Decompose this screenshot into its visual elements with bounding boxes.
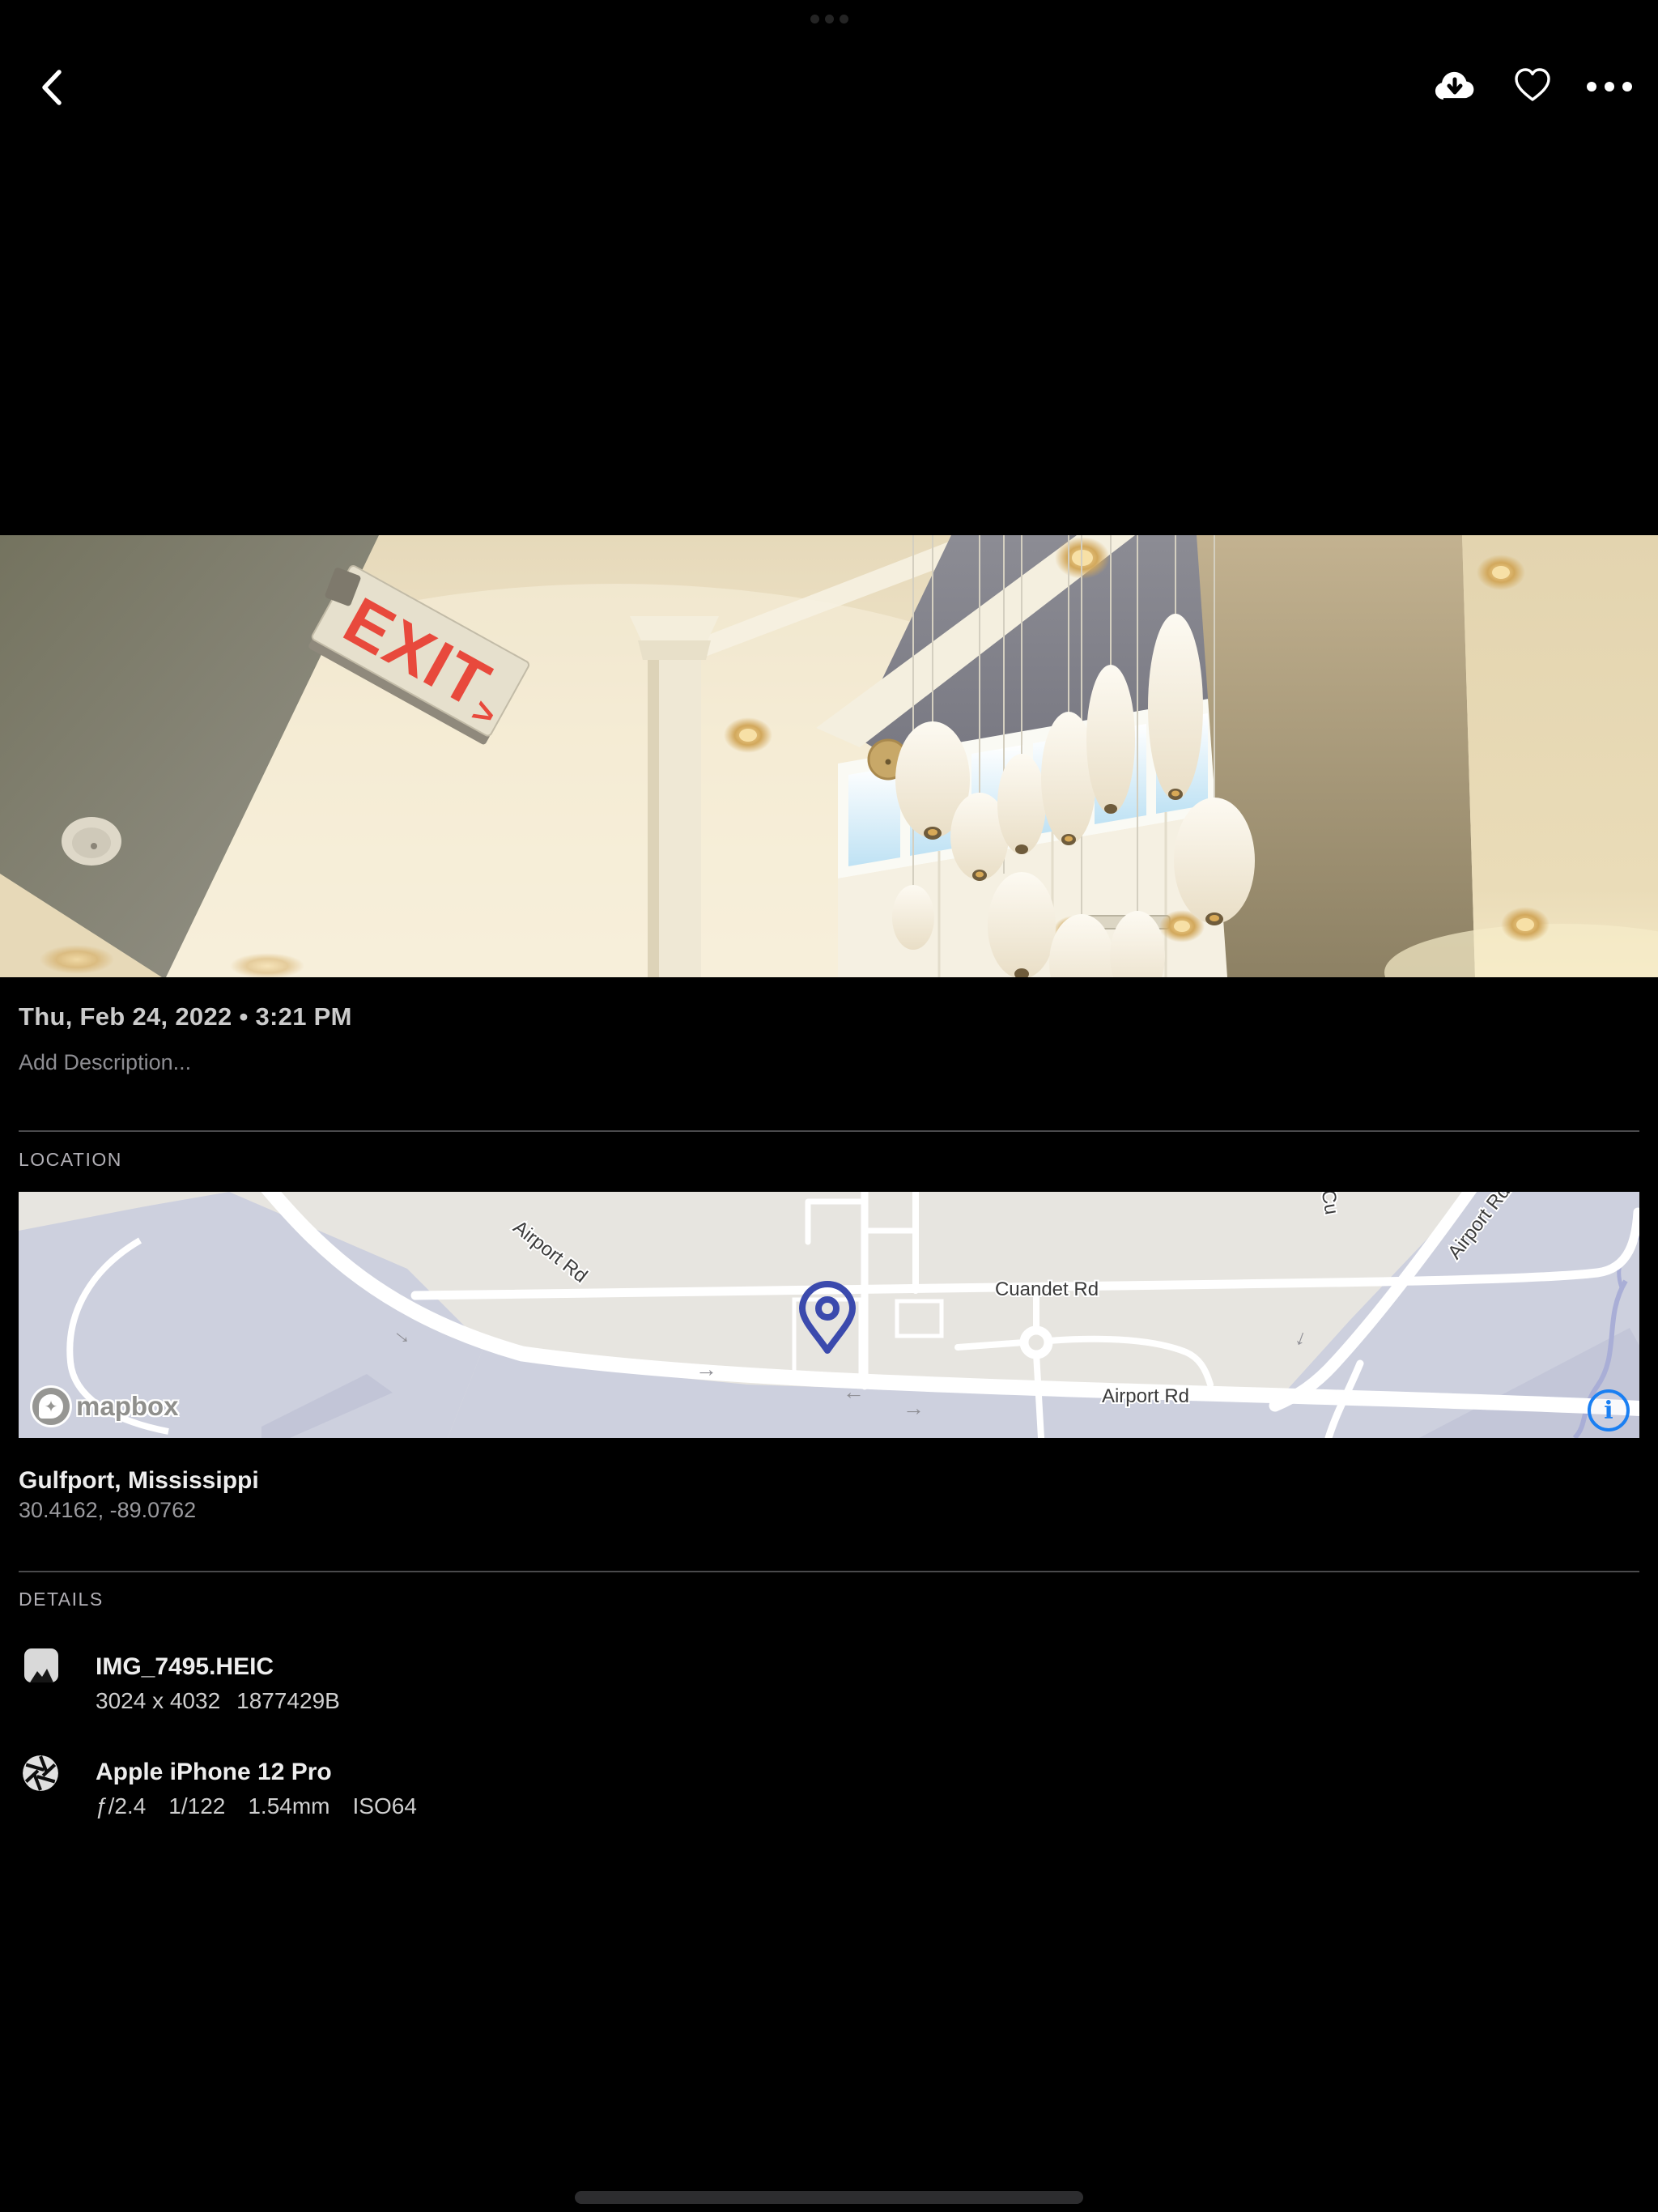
- file-size: 1877429B: [236, 1688, 340, 1714]
- photo-ceiling-lamps: EXIT >: [0, 535, 1658, 977]
- map-label-airport-rd-bottom: Airport Rd: [1102, 1385, 1189, 1407]
- camera-name: Apple iPhone 12 Pro: [96, 1759, 332, 1786]
- home-indicator[interactable]: [575, 2191, 1083, 2204]
- road-arrow: →: [695, 1357, 717, 1381]
- map-canvas: → → ← → ↓ Airport Rd Cuandet Rd Airport …: [19, 1192, 1639, 1438]
- favorite-button[interactable]: [1512, 65, 1553, 105]
- map-label-airport-rd-diagonal: Airport Rd: [509, 1216, 592, 1287]
- heart-icon: [1513, 67, 1552, 103]
- chevron-left-icon: [41, 69, 62, 106]
- map-label-cu-partial: Cu: [1316, 1192, 1342, 1216]
- mapbox-logo-icon: ✦: [32, 1388, 70, 1425]
- mapbox-wordmark: mapbox: [76, 1391, 179, 1422]
- add-description-field[interactable]: Add Description...: [19, 1050, 191, 1075]
- details-header: DETAILS: [19, 1589, 104, 1610]
- exif-aperture: ƒ/2.4: [96, 1793, 146, 1819]
- multitasking-dots-indicator[interactable]: [0, 15, 1658, 23]
- location-header: LOCATION: [19, 1149, 122, 1171]
- cloud-download-icon: [1433, 69, 1477, 103]
- back-button[interactable]: [31, 65, 73, 110]
- camera-exif: ƒ/2.4 1/122 1.54mm ISO64: [96, 1793, 417, 1819]
- road-arrow: →: [903, 1396, 925, 1420]
- ellipsis-icon: [1585, 81, 1634, 92]
- photo-viewer[interactable]: EXIT >: [0, 535, 1658, 977]
- place-name: Gulfport, Mississippi: [19, 1467, 259, 1495]
- file-meta: 3024 x 4032 1877429B: [96, 1688, 340, 1714]
- exif-shutter: 1/122: [168, 1793, 225, 1819]
- photo-date: Thu, Feb 24, 2022 • 3:21 PM: [19, 1002, 352, 1032]
- exif-focal-length: 1.54mm: [248, 1793, 329, 1819]
- location-map[interactable]: → → ← → ↓ Airport Rd Cuandet Rd Airport …: [19, 1192, 1639, 1438]
- info-icon: i: [1604, 1397, 1613, 1425]
- divider: [19, 1130, 1639, 1132]
- more-options-button[interactable]: [1584, 74, 1635, 99]
- image-file-icon: [24, 1648, 58, 1682]
- road-arrow: ←: [843, 1380, 865, 1404]
- camera-aperture-icon: [21, 1754, 60, 1797]
- file-dimensions: 3024 x 4032: [96, 1688, 220, 1714]
- exif-iso: ISO64: [353, 1793, 417, 1819]
- map-label-cuandet-rd: Cuandet Rd: [995, 1278, 1099, 1300]
- road-arrow: ↓: [1292, 1324, 1311, 1351]
- divider: [19, 1571, 1639, 1572]
- file-name: IMG_7495.HEIC: [96, 1653, 274, 1681]
- map-info-button[interactable]: i: [1588, 1389, 1630, 1431]
- download-button[interactable]: [1432, 66, 1477, 105]
- mapbox-attribution[interactable]: ✦ mapbox: [32, 1388, 179, 1425]
- place-coordinates: 30.4162, -89.0762: [19, 1498, 196, 1523]
